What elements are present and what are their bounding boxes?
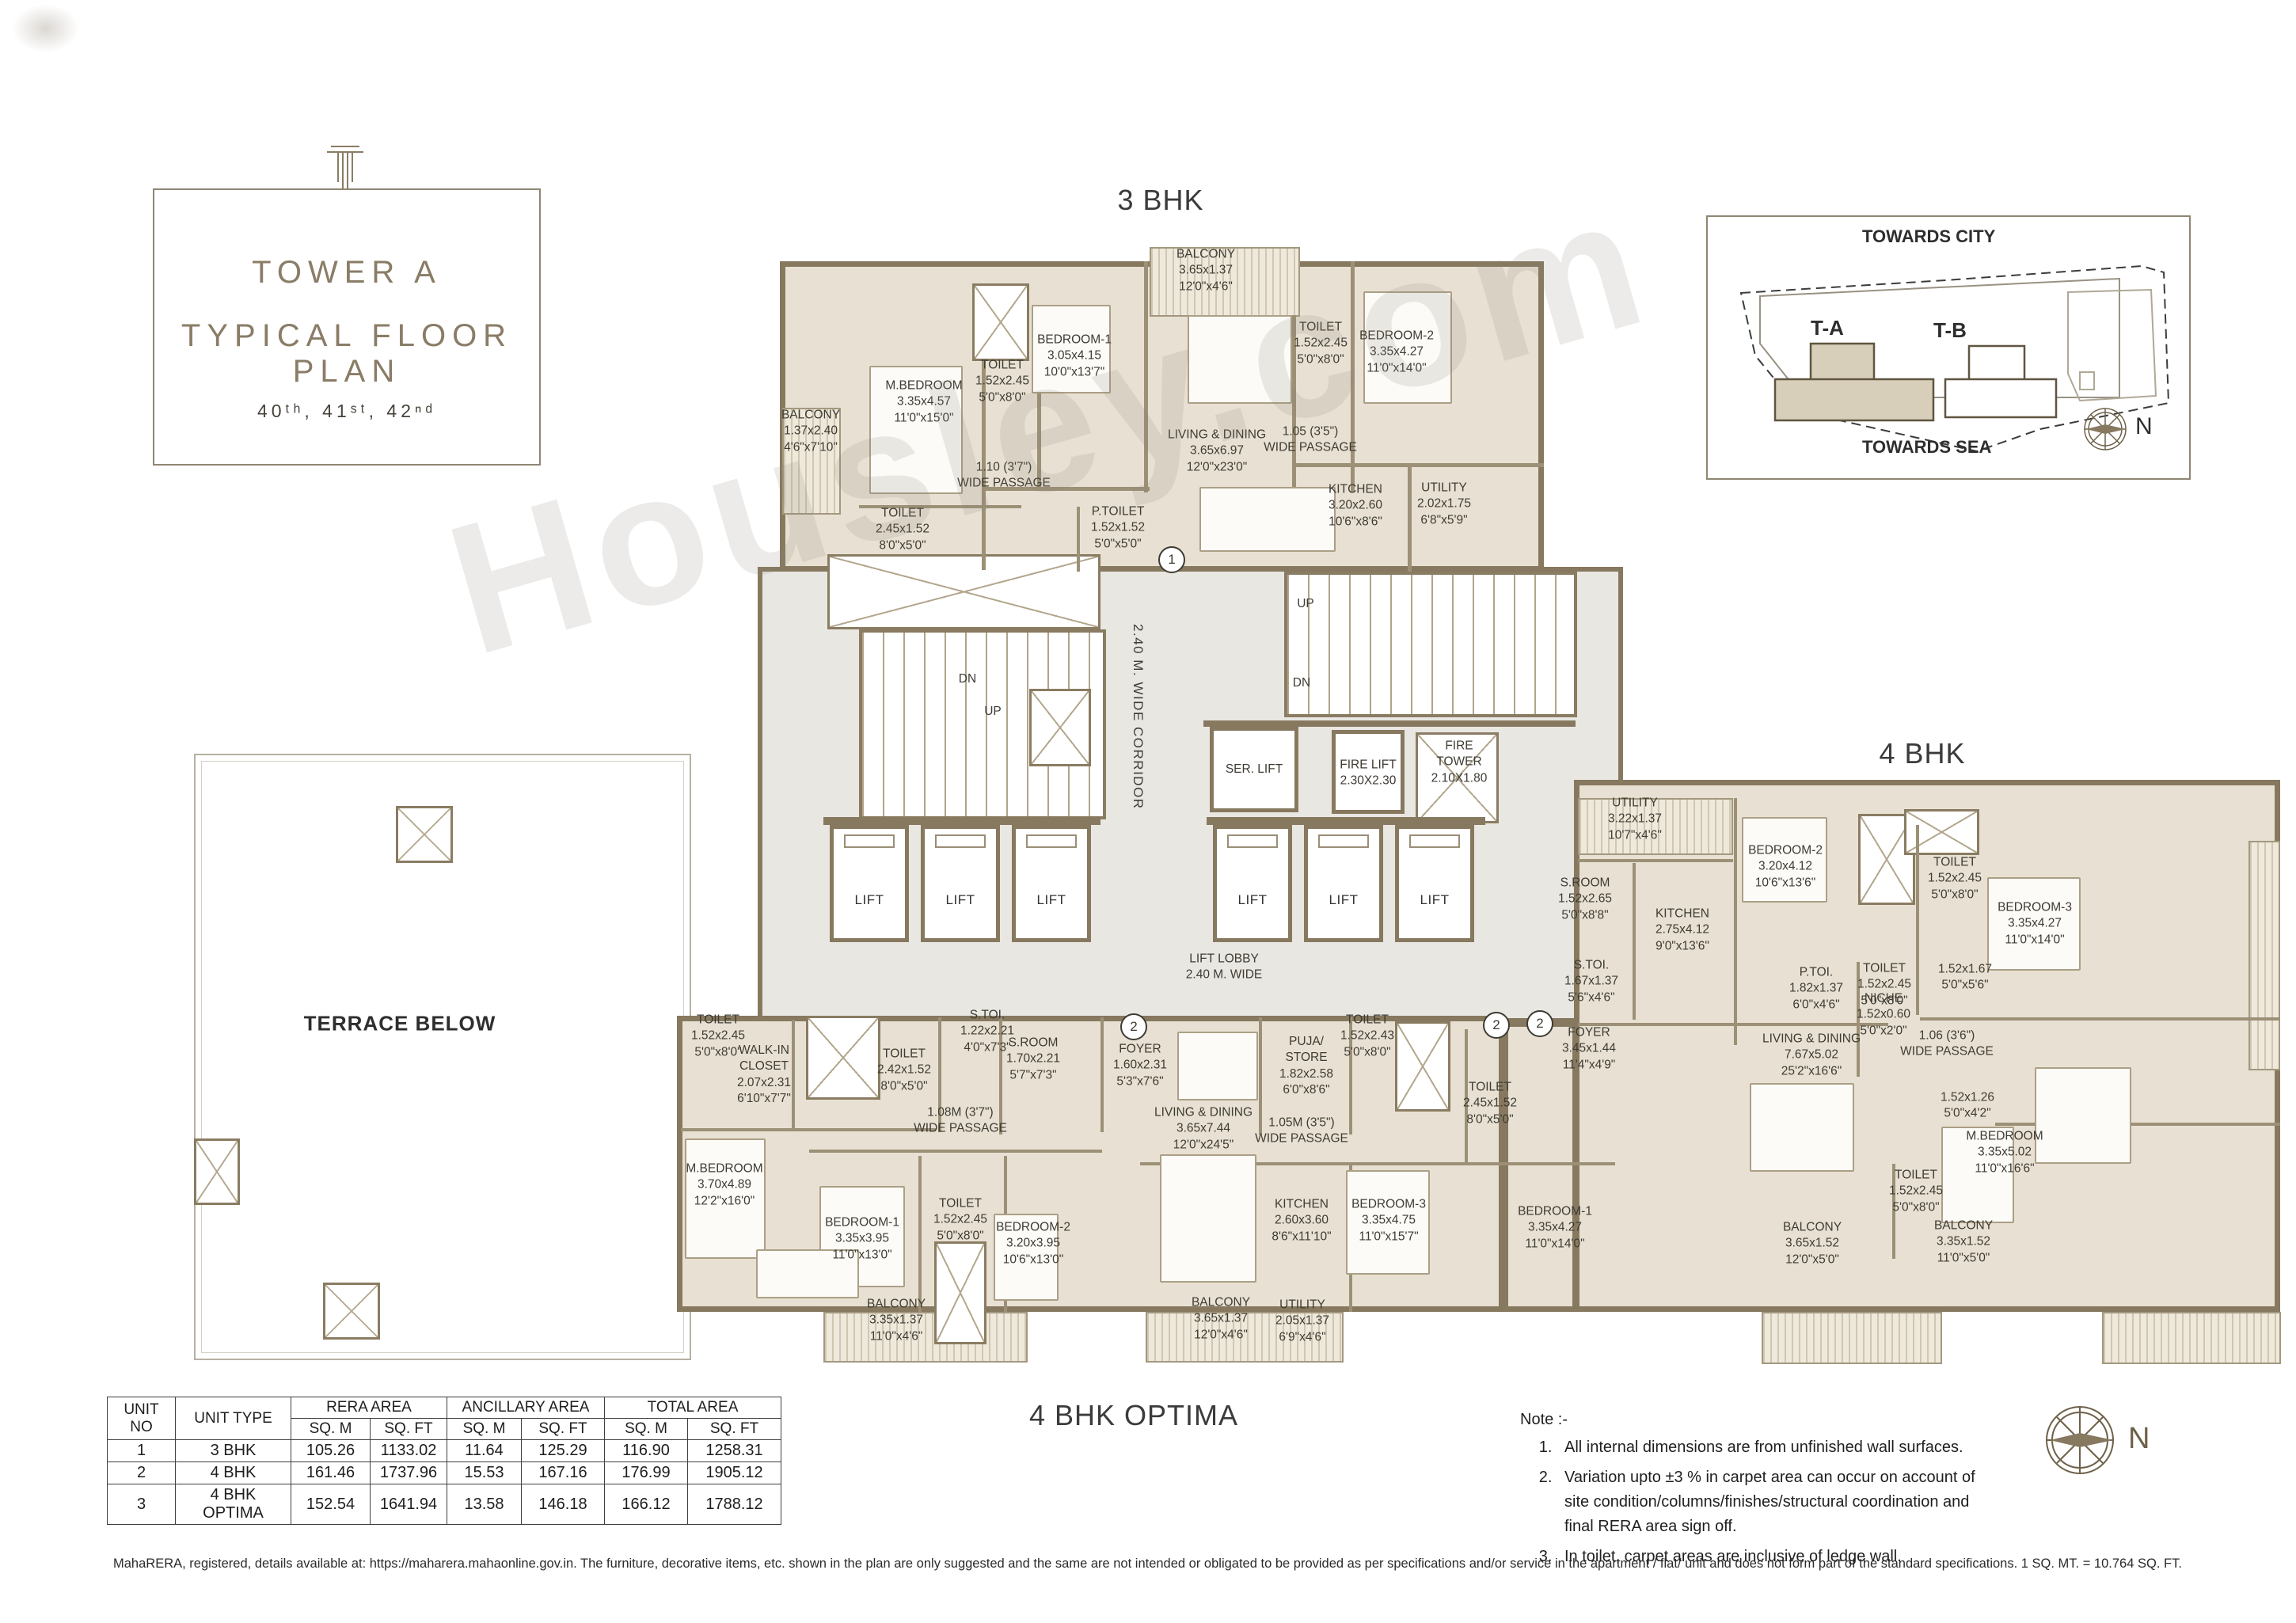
col-sqm: SQ. M: [291, 1419, 371, 1440]
shaft: [1416, 732, 1499, 823]
wall: [1077, 507, 1080, 572]
cell: 125.29: [522, 1440, 605, 1462]
lift-label: LIFT: [1037, 892, 1066, 908]
cell: 1258.31: [688, 1440, 781, 1462]
col-total: TOTAL AREA: [605, 1397, 781, 1419]
cell: 1788.12: [688, 1484, 781, 1525]
wall: [1892, 1164, 1895, 1259]
disclaimer: MahaRERA, registered, details available …: [113, 1556, 2286, 1572]
lift-shaft: LIFT: [1213, 825, 1292, 942]
wall: [1408, 463, 1412, 572]
notes-block: Note :- All internal dimensions are from…: [1520, 1411, 1975, 1575]
cell: 161.46: [291, 1462, 371, 1484]
table-row: 1 3 BHK 105.26 1133.02 11.64 125.29 116.…: [108, 1440, 781, 1462]
col-sqft: SQ. FT: [371, 1419, 447, 1440]
note-item: Variation upto ±3 % in carpet area can o…: [1557, 1465, 1975, 1539]
cell: 1737.96: [371, 1462, 447, 1484]
table-row: 2 4 BHK 161.46 1737.96 15.53 167.16 176.…: [108, 1462, 781, 1484]
wall: [792, 1020, 795, 1131]
notes-title: Note :-: [1520, 1411, 1975, 1429]
wall: [1857, 962, 1860, 1077]
balcony-deck: [823, 1312, 1028, 1363]
corridor-label: 2.40 M. WIDE CORRIDOR: [1130, 624, 1146, 810]
cell: 4 BHK OPTIMA: [176, 1484, 291, 1525]
lift-shaft: LIFT: [921, 825, 1000, 942]
cell: 116.90: [605, 1440, 688, 1462]
furniture: [1742, 817, 1827, 903]
cell: 1: [108, 1440, 176, 1462]
cell: 4 BHK: [176, 1462, 291, 1484]
wall: [1207, 817, 1485, 825]
heading-3bhk: 3 BHK: [1117, 184, 1203, 217]
balcony-deck: [782, 408, 841, 515]
col-sqm: SQ. M: [605, 1419, 688, 1440]
col-ancillary: ANCILLARY AREA: [447, 1397, 605, 1419]
furniture: [1032, 305, 1111, 393]
wall: [1144, 261, 1148, 492]
wall: [982, 487, 1150, 491]
lift-shaft: LIFT: [1304, 825, 1383, 942]
furniture: [2035, 1067, 2131, 1164]
wall: [938, 1017, 941, 1132]
lift-label: LIFT: [1238, 892, 1268, 908]
furniture: [1987, 877, 2081, 971]
col-sqft: SQ. FT: [522, 1419, 605, 1440]
wall: [999, 1017, 1002, 1135]
furniture: [1363, 291, 1452, 404]
balcony-deck: [1150, 247, 1300, 317]
shaft: [806, 1016, 880, 1100]
wall: [1916, 825, 1919, 1015]
col-rera: RERA AREA: [291, 1397, 447, 1419]
cell: 3 BHK: [176, 1440, 291, 1462]
unit-marker: 2: [1526, 1010, 1553, 1037]
area-table: UNIT NO UNIT TYPE RERA AREA ANCILLARY AR…: [107, 1397, 781, 1525]
shaft: [396, 806, 453, 863]
lift-label: LIFT: [946, 892, 975, 908]
col-sqm: SQ. M: [447, 1419, 522, 1440]
shaft: [194, 1138, 240, 1205]
cell: 2: [108, 1462, 176, 1484]
terrace-label: TERRACE BELOW: [304, 1012, 496, 1036]
shaft: [1395, 1021, 1450, 1112]
wall: [681, 1128, 936, 1131]
shaft: [972, 283, 1029, 361]
wall: [1734, 798, 1737, 1045]
shaft: [934, 1241, 986, 1344]
cell: 1133.02: [371, 1440, 447, 1462]
wall: [1578, 859, 1733, 862]
service-lift-box: [1332, 730, 1405, 814]
heading-4bhk: 4 BHK: [1879, 737, 1965, 770]
lift-label: LIFT: [1420, 892, 1450, 908]
furniture: [1941, 1127, 2014, 1223]
cell: 3: [108, 1484, 176, 1525]
furniture: [756, 1249, 859, 1298]
col-sqft: SQ. FT: [688, 1419, 781, 1440]
cell: 15.53: [447, 1462, 522, 1484]
cell: 176.99: [605, 1462, 688, 1484]
cell: 11.64: [447, 1440, 522, 1462]
floor-plan-sheet: TOWER A TYPICAL FLOOR PLAN 40ᵗʰ, 41ˢᵗ, 4…: [0, 0, 2296, 1623]
wall: [982, 360, 986, 570]
cell: 1641.94: [371, 1484, 447, 1525]
wall: [1578, 1023, 1888, 1026]
furniture: [1160, 1154, 1256, 1283]
balcony-deck: [2248, 841, 2280, 1070]
note-item: All internal dimensions are from unfinis…: [1557, 1435, 1975, 1460]
balcony-deck: [1146, 1312, 1344, 1363]
lift-label: LIFT: [1329, 892, 1359, 908]
wall: [1499, 1021, 1508, 1312]
furniture: [1750, 1083, 1854, 1172]
wall: [1349, 1017, 1352, 1135]
furniture: [685, 1138, 766, 1259]
lift-shaft: LIFT: [1395, 825, 1474, 942]
table-row: 3 4 BHK OPTIMA 152.54 1641.94 13.58 146.…: [108, 1484, 781, 1525]
cell: 1905.12: [688, 1462, 781, 1484]
furniture: [1199, 487, 1336, 552]
cell: 167.16: [522, 1462, 605, 1484]
heading-4bhk-optima: 4 BHK OPTIMA: [1029, 1399, 1238, 1432]
wall: [1465, 1029, 1468, 1162]
col-unit-no: UNIT NO: [108, 1397, 176, 1440]
cell: 152.54: [291, 1484, 371, 1525]
lift-label: LIFT: [855, 892, 884, 908]
balcony-deck: [1578, 798, 1733, 855]
service-lift-box: [1210, 727, 1298, 812]
lift-shaft: LIFT: [1012, 825, 1091, 942]
unit-4bhk-annex-area: [1499, 1021, 1578, 1312]
wall: [1259, 1017, 1262, 1135]
cell: 166.12: [605, 1484, 688, 1525]
cell: 146.18: [522, 1484, 605, 1525]
cell: 105.26: [291, 1440, 371, 1462]
unit-marker: 1: [1158, 546, 1185, 573]
furniture: [1188, 315, 1292, 404]
wall: [918, 1156, 922, 1312]
col-unit-type: UNIT TYPE: [176, 1397, 291, 1440]
wall: [1633, 863, 1636, 1020]
lift-shaft: LIFT: [830, 825, 909, 942]
balcony-deck: [1762, 1312, 1942, 1364]
wall: [823, 817, 1100, 825]
furniture: [1177, 1032, 1258, 1100]
wall: [1100, 1017, 1104, 1132]
shaft: [827, 554, 1100, 629]
staircase-right: [1284, 572, 1577, 717]
compass: N: [2043, 1403, 2169, 1478]
furniture: [869, 366, 963, 494]
wall: [1292, 463, 1544, 467]
shaft: [1029, 689, 1091, 766]
balcony-deck: [2102, 1312, 2281, 1364]
furniture: [994, 1214, 1059, 1301]
wall: [1203, 720, 1576, 727]
north-label: N: [2128, 1422, 2150, 1456]
cell: 13.58: [447, 1484, 522, 1525]
wall: [859, 505, 1021, 508]
unit-marker: 2: [1483, 1012, 1510, 1039]
floor-plan: TERRACE BELOW 2.40 M. WIDE CORRIDOR 3 BH…: [0, 0, 2296, 1623]
wall: [809, 1150, 1102, 1153]
shaft: [323, 1283, 380, 1340]
wall: [1351, 261, 1355, 492]
furniture: [1346, 1170, 1430, 1275]
wall: [1920, 1017, 2280, 1021]
unit-marker: 2: [1120, 1013, 1147, 1040]
